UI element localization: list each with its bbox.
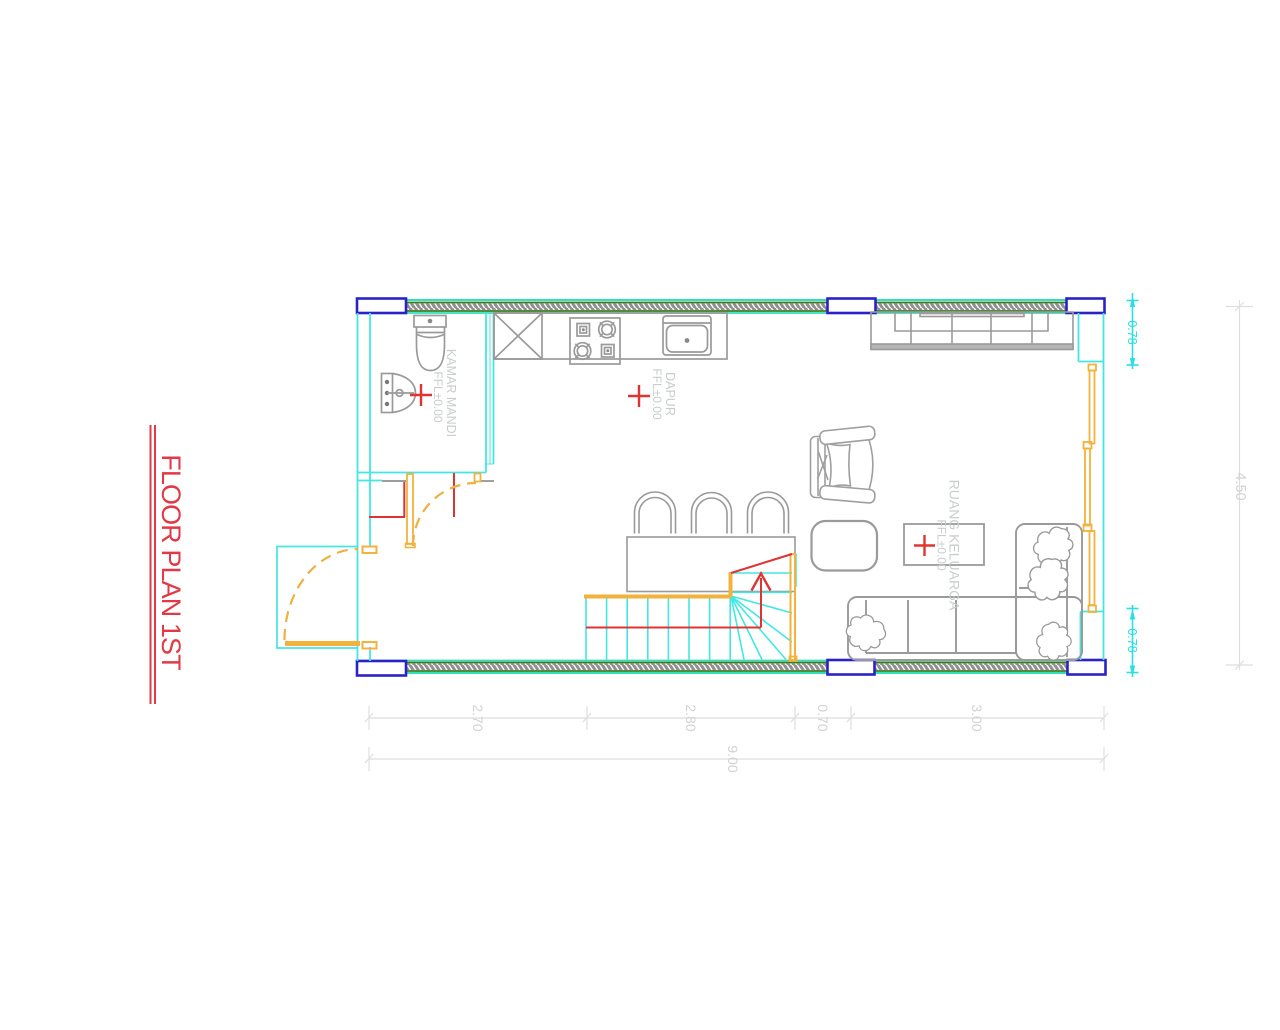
svg-text:0.78: 0.78 <box>1125 320 1139 344</box>
svg-text:3.00: 3.00 <box>969 704 985 731</box>
svg-text:FFL±0.00: FFL±0.00 <box>650 368 664 420</box>
svg-text:FFL±0.00: FFL±0.00 <box>935 519 949 571</box>
svg-text:9.00: 9.00 <box>725 745 741 772</box>
svg-text:0.78: 0.78 <box>1125 628 1139 652</box>
svg-text:KAMAR MANDI: KAMAR MANDI <box>444 349 458 437</box>
svg-text:FFL±0.00: FFL±0.00 <box>431 371 445 423</box>
svg-text:4.50: 4.50 <box>1232 472 1248 500</box>
svg-text:DAPUR: DAPUR <box>663 372 677 416</box>
svg-text:2.70: 2.70 <box>470 704 486 731</box>
svg-text:2.80: 2.80 <box>683 704 699 731</box>
svg-text:FLOOR PLAN 1ST: FLOOR PLAN 1ST <box>156 454 186 670</box>
svg-text:0.70: 0.70 <box>815 704 831 731</box>
